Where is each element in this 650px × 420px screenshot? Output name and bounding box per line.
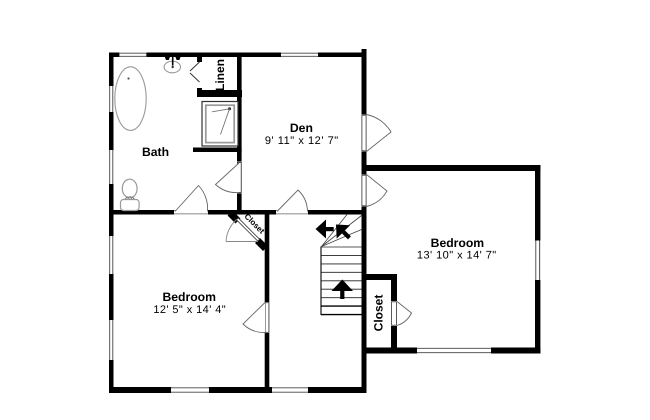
svg-text:Bedroom: Bedroom bbox=[431, 236, 485, 250]
svg-text:9' 11" x 12' 7": 9' 11" x 12' 7" bbox=[265, 135, 339, 147]
svg-text:Closet: Closet bbox=[372, 295, 386, 332]
svg-text:Den: Den bbox=[290, 121, 313, 135]
svg-text:12' 5" x 14' 4": 12' 5" x 14' 4" bbox=[153, 304, 226, 316]
svg-text:Linen: Linen bbox=[213, 59, 227, 91]
svg-text:Bedroom: Bedroom bbox=[162, 290, 216, 304]
svg-text:Bath: Bath bbox=[142, 145, 169, 159]
svg-text:13' 10" x 14' 7": 13' 10" x 14' 7" bbox=[417, 250, 497, 262]
